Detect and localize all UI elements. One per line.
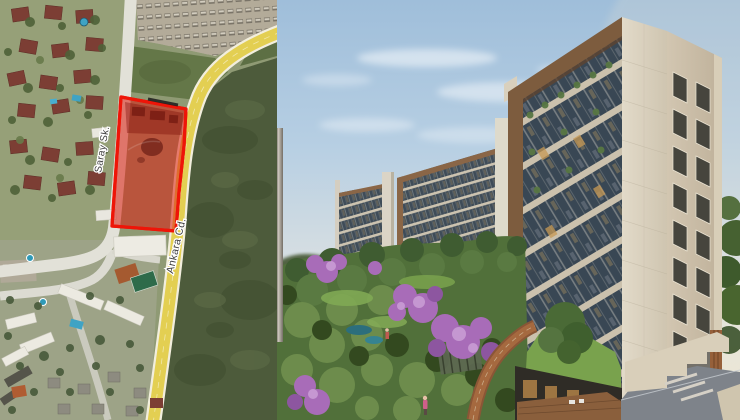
satellite-map: Saray Sk. Ankara Cd.: [0, 0, 277, 420]
lamp-pole: [277, 128, 283, 342]
highlighted-parcel: [112, 97, 186, 231]
project-render: [277, 0, 740, 420]
water-feature: [346, 325, 372, 335]
project-render-panel: [277, 0, 740, 420]
composite-image: Saray Sk. Ankara Cd.: [0, 0, 740, 420]
white-building-below-parcel: [114, 235, 167, 257]
satellite-map-panel: Saray Sk. Ankara Cd.: [0, 0, 277, 420]
